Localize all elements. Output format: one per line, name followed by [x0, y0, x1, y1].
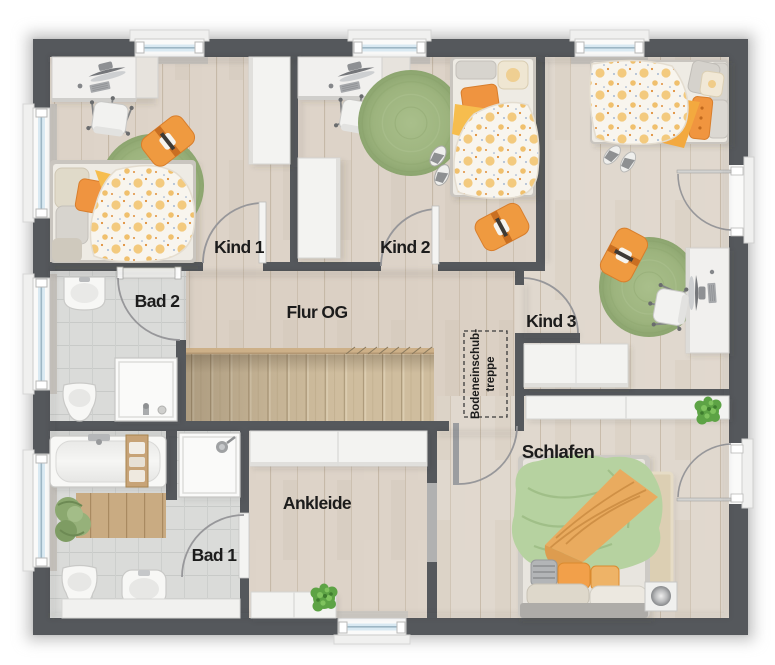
svg-text:Kind 1: Kind 1 [214, 237, 265, 257]
svg-text:Kind 2: Kind 2 [380, 237, 431, 257]
svg-text:Bodeneinschub-: Bodeneinschub- [470, 329, 482, 419]
svg-text:Kind 3: Kind 3 [526, 311, 577, 331]
svg-text:treppe: treppe [485, 356, 497, 391]
svg-text:Schlafen: Schlafen [522, 441, 595, 462]
svg-text:Bad 1: Bad 1 [192, 545, 238, 565]
svg-text:Ankleide: Ankleide [283, 493, 352, 513]
svg-text:Bad 2: Bad 2 [135, 291, 181, 311]
svg-text:Flur OG: Flur OG [287, 302, 348, 322]
